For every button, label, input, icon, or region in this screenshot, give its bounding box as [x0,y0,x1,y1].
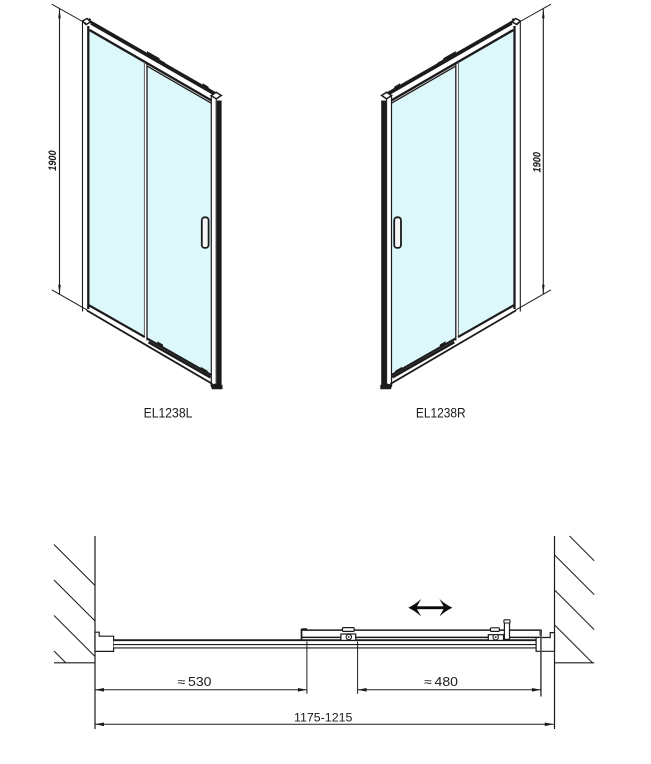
svg-text:≈ 530: ≈ 530 [178,675,212,689]
svg-text:1900: 1900 [47,150,59,171]
svg-text:EL1238L: EL1238L [144,404,193,420]
svg-text:1175-1215: 1175-1215 [294,710,353,724]
svg-text:EL1238R: EL1238R [416,404,466,420]
svg-text:1900: 1900 [532,151,544,172]
svg-text:≈ 480: ≈ 480 [424,675,458,689]
